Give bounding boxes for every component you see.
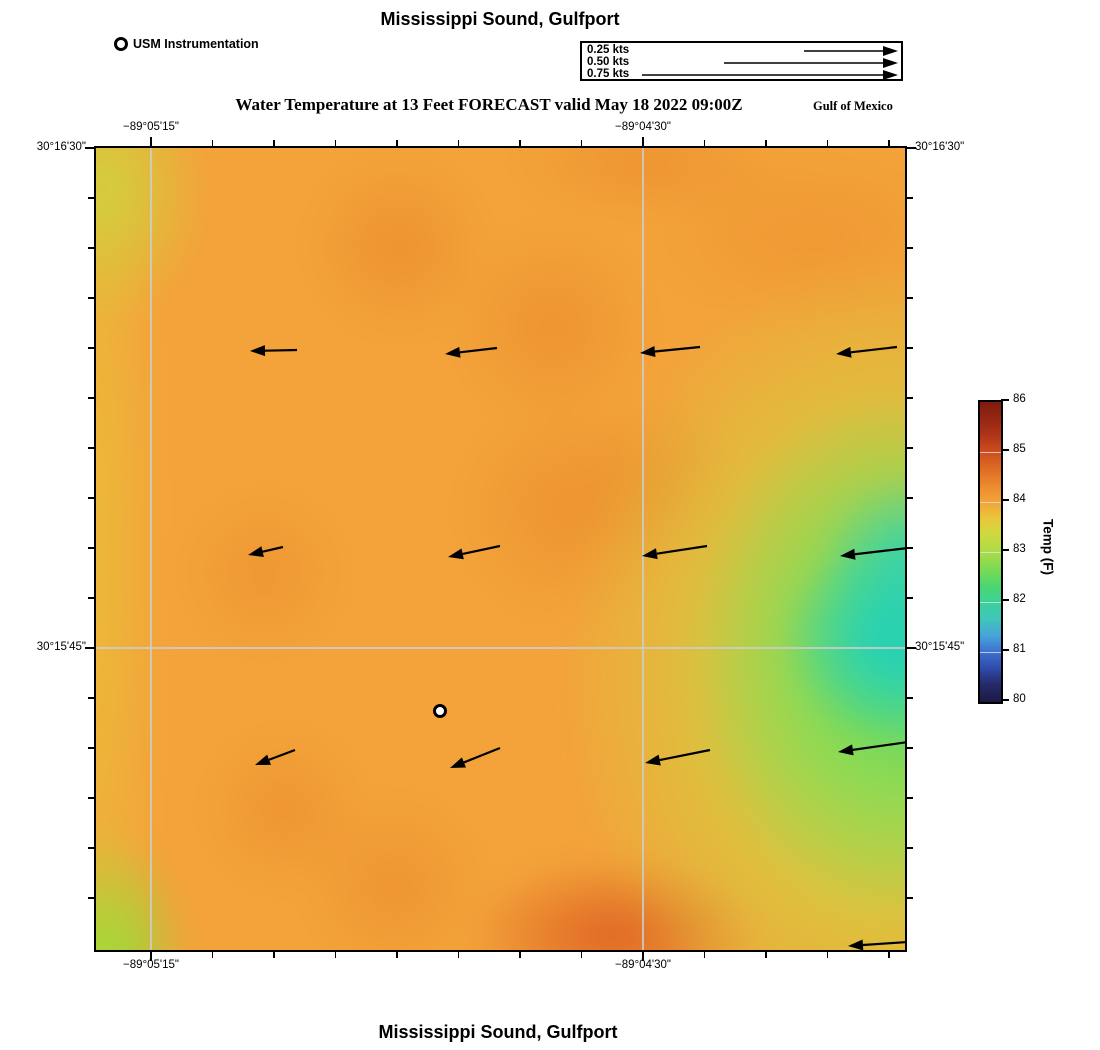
axis-tick (212, 952, 214, 958)
axis-tick (273, 952, 275, 958)
current-vector-arrows (96, 148, 905, 950)
axis-tick (827, 140, 829, 146)
colorbar-tick-label: 86 (1013, 393, 1026, 405)
colorbar-tick (1001, 449, 1009, 451)
axis-tick (907, 597, 913, 599)
axis-tick (907, 347, 913, 349)
current-vector-arrow (836, 347, 897, 358)
temperature-map (94, 146, 907, 952)
velocity-scale-legend: 0.25 kts 0.50 kts 0.75 kts (580, 41, 903, 81)
colorbar-tick-label: 81 (1013, 643, 1026, 655)
basin-label: Gulf of Mexico (813, 99, 893, 114)
current-vector-arrow (642, 546, 707, 559)
axis-tick (907, 547, 913, 549)
axis-tick (88, 447, 94, 449)
current-vector-arrow (448, 546, 500, 559)
usm-legend-label: USM Instrumentation (133, 37, 259, 51)
axis-tick (88, 847, 94, 849)
colorbar-tick-label: 84 (1013, 493, 1026, 505)
colorbar-tick-label: 82 (1013, 593, 1026, 605)
axis-tick (704, 952, 706, 958)
lat-tick-label: 30°15'45" (915, 641, 964, 653)
lat-tick-label: 30°15'45" (0, 641, 86, 653)
axis-tick (907, 397, 913, 399)
axis-tick (827, 952, 829, 958)
axis-tick (335, 952, 337, 958)
axis-tick (907, 747, 913, 749)
axis-tick (88, 597, 94, 599)
current-vector-arrow (645, 750, 710, 765)
figure-footer-title: Mississippi Sound, Gulfport (378, 1022, 617, 1043)
colorbar-tick (1001, 649, 1009, 651)
axis-tick (888, 140, 890, 146)
axis-tick (907, 697, 913, 699)
colorbar-tick-label: 83 (1013, 543, 1026, 555)
lon-tick-label: −89°04'30" (615, 959, 671, 971)
axis-tick (88, 247, 94, 249)
axis-tick (765, 952, 767, 958)
current-vector-arrow (248, 546, 283, 557)
axis-tick (88, 197, 94, 199)
axis-tick (88, 547, 94, 549)
colorbar-axis-label: Temp (F) (1041, 519, 1056, 575)
axis-tick (907, 497, 913, 499)
colorbar-tick (1001, 399, 1009, 401)
axis-tick (519, 952, 521, 958)
current-vector-arrow (450, 748, 500, 768)
axis-tick (888, 952, 890, 958)
axis-tick (704, 140, 706, 146)
velocity-scale-arrow (804, 46, 898, 56)
velocity-scale-arrows (582, 43, 901, 79)
current-vector-arrow (848, 940, 905, 950)
current-vector-arrow (445, 347, 497, 358)
lon-tick-label: −89°05'15" (123, 121, 179, 133)
axis-tick (88, 747, 94, 749)
colorbar-gridline (980, 602, 1001, 603)
axis-tick (85, 147, 94, 149)
axis-tick (907, 797, 913, 799)
current-vector-arrow (840, 548, 905, 560)
axis-tick (907, 247, 913, 249)
axis-tick (458, 952, 460, 958)
forecast-figure: Mississippi Sound, Gulfport USM Instrume… (0, 0, 1100, 1050)
axis-tick (458, 140, 460, 146)
usm-station-marker-icon (433, 704, 447, 718)
lon-tick-label: −89°04'30" (615, 121, 671, 133)
temperature-colorbar (978, 400, 1003, 704)
velocity-scale-arrow (642, 70, 898, 79)
lat-tick-label: 30°16'30" (0, 141, 86, 153)
figure-subtitle: Water Temperature at 13 Feet FORECAST va… (235, 95, 742, 115)
axis-tick (907, 847, 913, 849)
axis-tick (88, 397, 94, 399)
axis-tick (88, 347, 94, 349)
station-circle-icon (114, 37, 128, 51)
usm-instrumentation-legend: USM Instrumentation (114, 37, 259, 51)
current-vector-arrow (255, 750, 295, 765)
axis-tick (907, 297, 913, 299)
axis-tick (212, 140, 214, 146)
axis-tick (396, 952, 398, 958)
current-vector-arrow (250, 345, 297, 356)
current-vector-arrow (838, 742, 905, 755)
colorbar-tick (1001, 499, 1009, 501)
axis-tick (581, 952, 583, 958)
colorbar-tick-label: 80 (1013, 693, 1026, 705)
axis-tick (765, 140, 767, 146)
axis-tick (642, 137, 644, 146)
lat-tick-label: 30°16'30" (915, 141, 964, 153)
colorbar-tick (1001, 599, 1009, 601)
colorbar-gridline (980, 452, 1001, 453)
colorbar-gridline (980, 502, 1001, 503)
axis-tick (273, 140, 275, 146)
figure-title: Mississippi Sound, Gulfport (380, 9, 619, 30)
velocity-scale-arrow (724, 58, 898, 68)
axis-tick (907, 897, 913, 899)
axis-tick (581, 140, 583, 146)
axis-tick (88, 697, 94, 699)
colorbar-tick-label: 85 (1013, 443, 1026, 455)
colorbar-gridline (980, 552, 1001, 553)
axis-tick (907, 197, 913, 199)
axis-tick (88, 497, 94, 499)
axis-tick (519, 140, 521, 146)
lon-tick-label: −89°05'15" (123, 959, 179, 971)
colorbar-gridline (980, 652, 1001, 653)
axis-tick (150, 137, 152, 146)
axis-tick (85, 647, 94, 649)
axis-tick (396, 140, 398, 146)
axis-tick (88, 897, 94, 899)
axis-tick (907, 447, 913, 449)
colorbar-tick (1001, 699, 1009, 701)
axis-tick (88, 797, 94, 799)
current-vector-arrow (640, 346, 700, 357)
colorbar-tick (1001, 549, 1009, 551)
axis-tick (335, 140, 337, 146)
axis-tick (88, 297, 94, 299)
